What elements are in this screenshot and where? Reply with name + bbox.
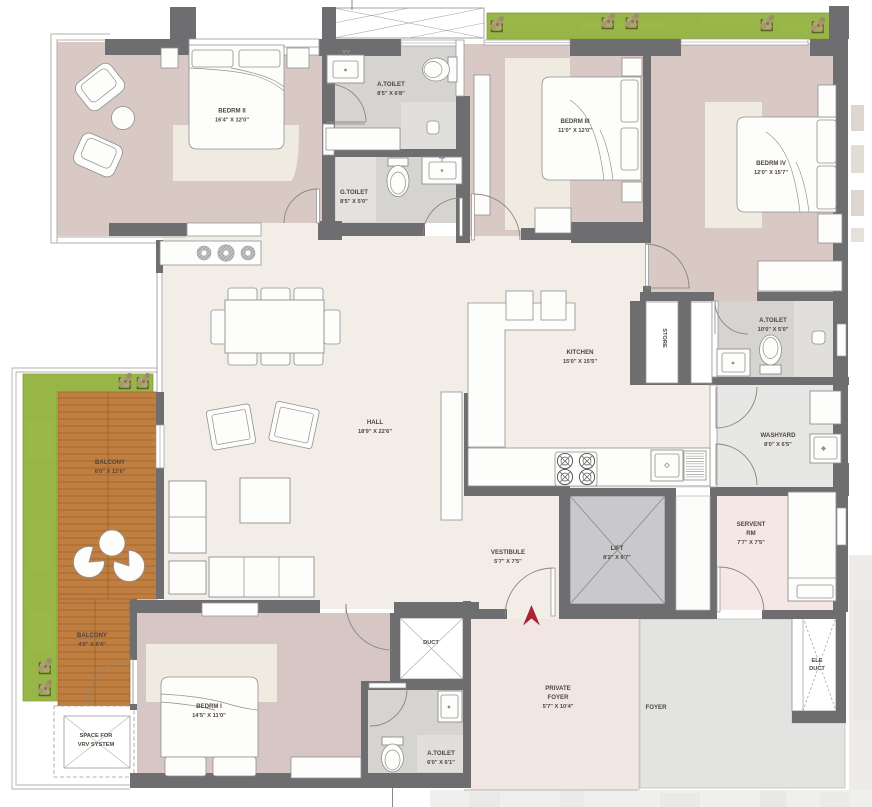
svg-text:8'0" X 6'5": 8'0" X 6'5" — [764, 442, 792, 448]
svg-text:BALCONY: BALCONY — [77, 632, 107, 639]
svg-text:WASHYARD: WASHYARD — [761, 432, 797, 439]
svg-text:BEDRM III: BEDRM III — [560, 118, 589, 125]
svg-text:HALL: HALL — [367, 419, 384, 426]
svg-text:SERVENT: SERVENT — [737, 521, 766, 528]
svg-text:12'0" X 15'7": 12'0" X 15'7" — [754, 170, 788, 176]
svg-text:G.TOILET: G.TOILET — [340, 189, 368, 196]
svg-text:DUCT: DUCT — [809, 666, 825, 672]
svg-text:A.TOILET: A.TOILET — [759, 317, 787, 324]
svg-text:8'2" X 6'7": 8'2" X 6'7" — [603, 555, 631, 561]
svg-text:PRIVATE: PRIVATE — [545, 685, 571, 692]
svg-text:11'0" X 12'0": 11'0" X 12'0" — [558, 128, 592, 134]
svg-text:7'7" X 7'5": 7'7" X 7'5" — [737, 540, 765, 546]
svg-text:A.TOILET: A.TOILET — [427, 750, 455, 757]
svg-text:10'0" X 5'0": 10'0" X 5'0" — [758, 327, 789, 333]
svg-text:VESTIBULE: VESTIBULE — [491, 549, 525, 556]
svg-text:6'0" X 6'1": 6'0" X 6'1" — [427, 760, 455, 766]
svg-text:18'9" X 22'6": 18'9" X 22'6" — [358, 429, 392, 435]
svg-text:ELE: ELE — [811, 658, 822, 664]
svg-text:6'0" X 12'6": 6'0" X 12'6" — [95, 469, 126, 475]
svg-text:16'4" X 12'0": 16'4" X 12'0" — [215, 118, 249, 124]
svg-text:FOYER: FOYER — [548, 694, 570, 701]
svg-text:14'5" X 11'0": 14'5" X 11'0" — [192, 713, 226, 719]
svg-text:5'7" X 10'4": 5'7" X 10'4" — [543, 704, 574, 710]
svg-text:RM: RM — [746, 530, 755, 537]
svg-text:BEDRM IV: BEDRM IV — [756, 160, 787, 167]
svg-text:LIFT: LIFT — [611, 545, 624, 552]
svg-text:8'5" X 5'0": 8'5" X 5'0" — [340, 199, 368, 205]
svg-text:VRV SYSTEM: VRV SYSTEM — [78, 742, 115, 748]
svg-text:FOYER: FOYER — [646, 704, 668, 711]
svg-text:STORE: STORE — [661, 328, 667, 348]
svg-text:SPACE FOR: SPACE FOR — [80, 733, 113, 739]
svg-text:DUCT: DUCT — [423, 640, 439, 646]
svg-text:BALCONY: BALCONY — [95, 459, 125, 466]
svg-text:8'5" X 6'8": 8'5" X 6'8" — [377, 91, 405, 97]
svg-text:5'7" X 7'5": 5'7" X 7'5" — [494, 559, 522, 565]
svg-text:15'0" X 15'5": 15'0" X 15'5" — [563, 359, 597, 365]
svg-text:KITCHEN: KITCHEN — [566, 349, 593, 356]
svg-text:BEDRM I: BEDRM I — [196, 703, 222, 710]
svg-text:A.TOILET: A.TOILET — [377, 81, 405, 88]
svg-text:BEDRM II: BEDRM II — [218, 108, 246, 115]
svg-text:4'0" X 6'4": 4'0" X 6'4" — [78, 642, 106, 648]
